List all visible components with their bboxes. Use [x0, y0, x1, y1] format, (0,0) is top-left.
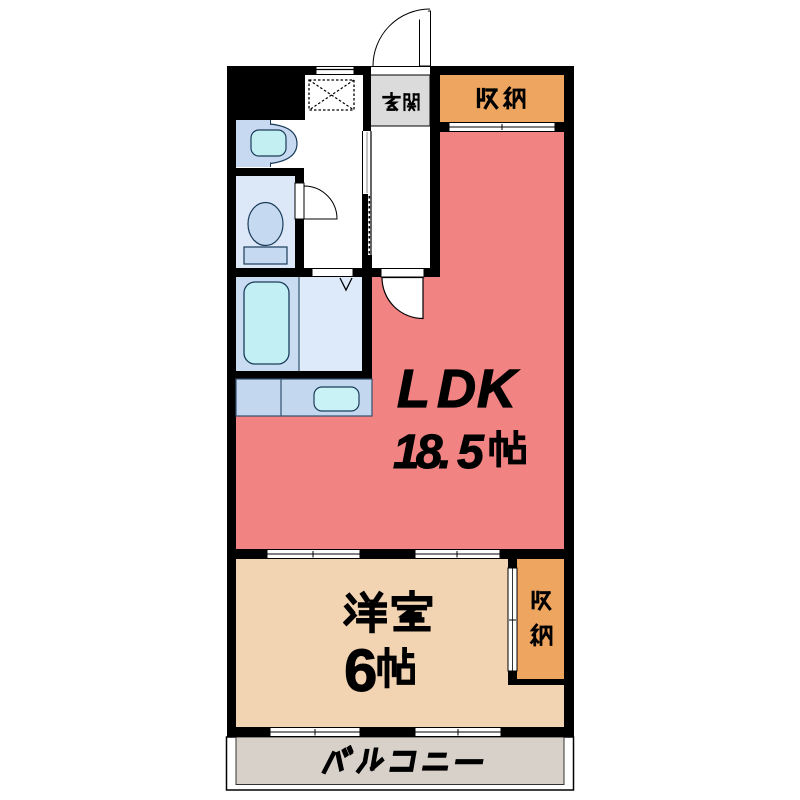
svg-text:K: K — [477, 359, 520, 419]
svg-text:18. 5: 18. 5 — [393, 426, 485, 479]
svg-text:L: L — [397, 359, 430, 419]
svg-text:6: 6 — [344, 637, 377, 704]
svg-text:D: D — [437, 359, 476, 419]
